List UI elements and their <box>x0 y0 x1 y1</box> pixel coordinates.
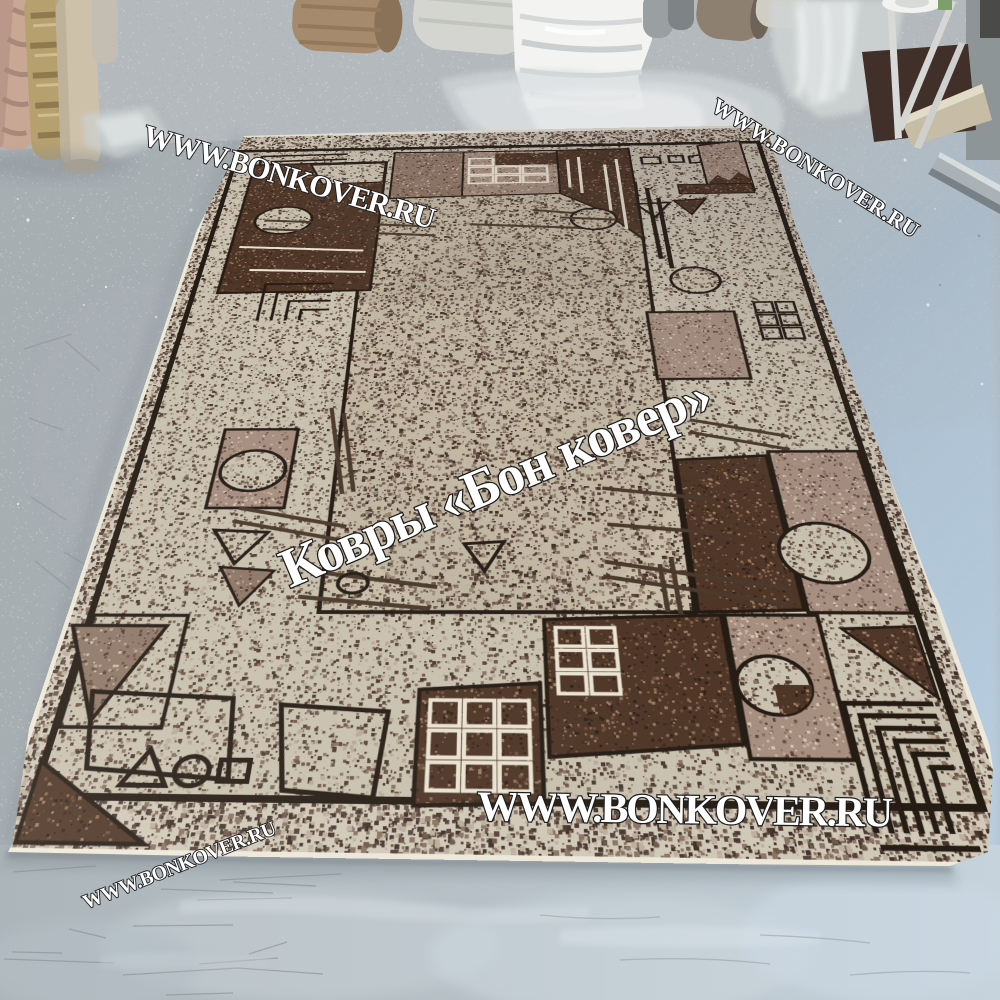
svg-text:WWW.BONKOVER.RU: WWW.BONKOVER.RU <box>80 817 280 913</box>
svg-text:WWW.BONKOVER.RU: WWW.BONKOVER.RU <box>707 93 923 242</box>
svg-text:WWW.BONKOVER.RU: WWW.BONKOVER.RU <box>139 119 439 236</box>
svg-text:Ковры «Бон ковер»: Ковры «Бон ковер» <box>271 363 720 599</box>
svg-text:WWW.BONKOVER.RU: WWW.BONKOVER.RU <box>477 784 894 837</box>
